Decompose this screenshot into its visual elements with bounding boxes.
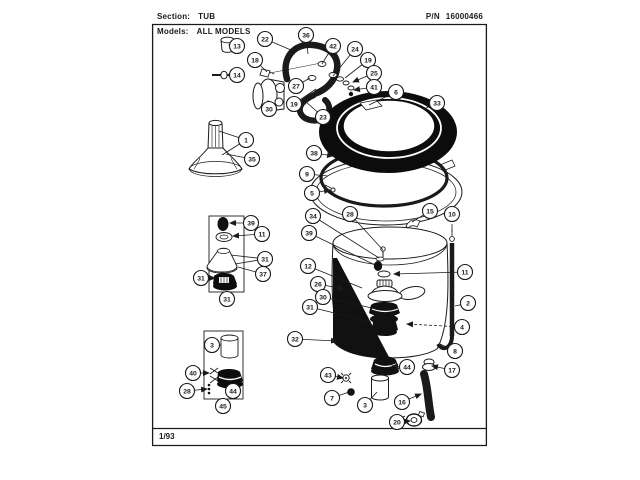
models-row: Models:ALL MODELS: [157, 27, 483, 36]
svg-text:28: 28: [346, 211, 354, 218]
svg-text:31: 31: [223, 296, 231, 303]
callout-43: 43: [321, 368, 344, 383]
section-value: TUB: [198, 12, 215, 21]
callout-44: 44: [226, 384, 241, 399]
svg-text:25: 25: [370, 70, 378, 77]
callout-32: 32: [288, 332, 338, 347]
footer-date: 1/93: [159, 432, 175, 441]
manual-page: 1314135223642241925411830271923633389515…: [0, 0, 640, 480]
svg-text:43: 43: [324, 372, 332, 379]
callout-10: 10: [445, 207, 460, 236]
svg-text:42: 42: [329, 43, 337, 50]
section-title: Section:TUB: [157, 12, 215, 21]
part-number: P/N16000466: [426, 12, 483, 21]
svg-text:4: 4: [460, 324, 464, 331]
pn-value: 16000466: [446, 12, 483, 21]
part-screw: [212, 71, 227, 79]
callout-18: 18: [248, 53, 268, 73]
callout-40: 40: [186, 366, 210, 381]
svg-text:17: 17: [448, 367, 456, 374]
svg-text:26: 26: [314, 281, 322, 288]
header-row: Section:TUB P/N16000466: [157, 12, 483, 21]
svg-text:32: 32: [291, 336, 299, 343]
callout-3: 3: [205, 338, 222, 353]
inset-seal-kit: [207, 216, 244, 292]
svg-text:35: 35: [248, 156, 256, 163]
svg-text:39: 39: [247, 220, 255, 227]
callout-31: 31: [231, 252, 273, 267]
svg-text:18: 18: [251, 57, 259, 64]
svg-text:1: 1: [244, 137, 248, 144]
svg-text:31: 31: [261, 256, 269, 263]
callout-28: 28: [180, 384, 208, 399]
svg-text:37: 37: [259, 271, 267, 278]
svg-text:9: 9: [305, 171, 309, 178]
callout-41: 41: [354, 80, 382, 95]
svg-text:38: 38: [310, 150, 318, 157]
agitator: [189, 120, 242, 176]
svg-text:15: 15: [426, 208, 434, 215]
drain-fitting: [423, 359, 436, 371]
svg-text:16: 16: [398, 399, 406, 406]
svg-text:45: 45: [219, 403, 227, 410]
callout-45: 45: [216, 399, 231, 414]
pn-label: P/N: [426, 12, 440, 21]
svg-text:19: 19: [290, 101, 298, 108]
svg-text:13: 13: [233, 43, 241, 50]
svg-text:8: 8: [453, 348, 457, 355]
callout-17: 17: [432, 363, 460, 378]
svg-text:30: 30: [319, 294, 327, 301]
svg-text:6: 6: [394, 89, 398, 96]
svg-text:23: 23: [319, 114, 327, 121]
svg-text:20: 20: [393, 419, 401, 426]
svg-text:3: 3: [363, 402, 367, 409]
svg-text:28: 28: [183, 388, 191, 395]
svg-text:39: 39: [305, 230, 313, 237]
svg-text:30: 30: [265, 106, 273, 113]
svg-text:11: 11: [461, 269, 468, 276]
svg-text:34: 34: [309, 213, 317, 220]
outlet-hose: [424, 374, 431, 417]
callout-31: 31: [220, 292, 235, 307]
parts-diagram: 1314135223642241925411830271923633389515…: [0, 0, 640, 480]
svg-text:31: 31: [306, 304, 314, 311]
callout-2: 2: [455, 296, 476, 311]
svg-text:24: 24: [351, 46, 359, 53]
models-title: Models:ALL MODELS: [157, 27, 250, 36]
svg-text:22: 22: [261, 36, 269, 43]
svg-text:12: 12: [304, 263, 312, 270]
svg-text:33: 33: [433, 100, 441, 107]
svg-text:44: 44: [229, 388, 237, 395]
callout-13: 13: [229, 39, 245, 54]
frame-lines: [152, 24, 487, 446]
svg-text:3: 3: [210, 342, 214, 349]
svg-text:41: 41: [370, 84, 378, 91]
callout-16: 16: [395, 394, 422, 410]
callout-37: 37: [238, 267, 271, 282]
svg-text:14: 14: [233, 72, 241, 79]
svg-text:31: 31: [197, 275, 205, 282]
callout-31: 31: [194, 271, 216, 286]
callout-8: 8: [440, 344, 463, 359]
callout-14: 14: [227, 68, 245, 83]
svg-text:40: 40: [189, 370, 197, 377]
svg-text:10: 10: [448, 211, 456, 218]
models-value: ALL MODELS: [197, 27, 251, 36]
svg-text:27: 27: [292, 83, 300, 90]
svg-text:44: 44: [403, 364, 411, 371]
svg-text:5: 5: [310, 190, 314, 197]
svg-text:19: 19: [364, 57, 372, 64]
callout-27: 27: [289, 78, 311, 94]
callout-7: 7: [325, 391, 350, 406]
svg-text:11: 11: [258, 231, 265, 238]
svg-text:2: 2: [466, 300, 470, 307]
section-label: Section:: [157, 12, 190, 21]
svg-text:7: 7: [330, 395, 334, 402]
models-label: Models:: [157, 27, 189, 36]
callout-3: 3: [358, 392, 378, 413]
cover-screw: [331, 188, 335, 192]
